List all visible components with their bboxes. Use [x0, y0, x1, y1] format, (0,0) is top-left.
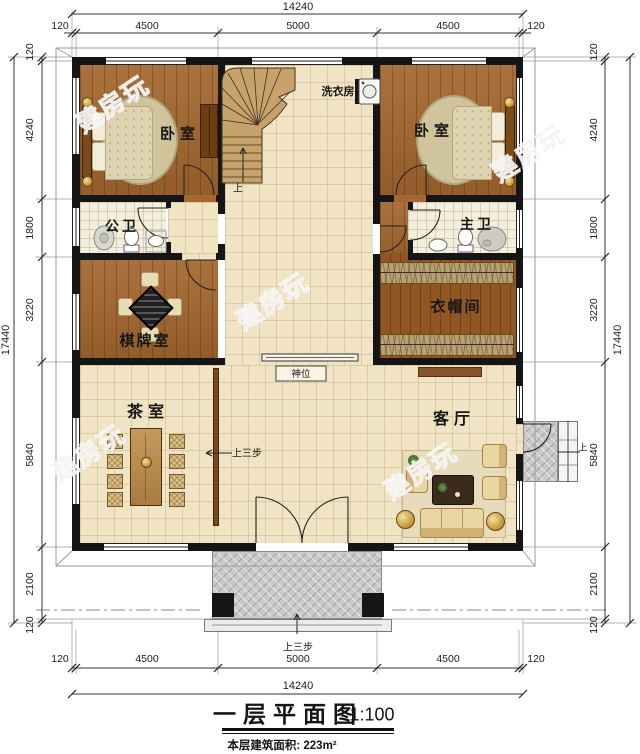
dim-left-seg: 1800: [24, 216, 36, 239]
up-three-steps-label: 上三步: [232, 445, 262, 460]
main-door-opening: [256, 543, 348, 551]
dim-left-seg: 4240: [24, 118, 36, 141]
bedside-lamp: [504, 97, 515, 108]
armchair: [482, 444, 507, 468]
tea-stool: [107, 492, 123, 507]
title-underline: [222, 728, 394, 731]
window: [516, 481, 523, 530]
up-three-steps-label: 上三步: [283, 639, 313, 654]
pillow: [490, 112, 505, 141]
wall-bathR-south: [408, 253, 523, 260]
window: [106, 57, 186, 65]
stair-up-label: 上: [233, 180, 243, 195]
window: [516, 288, 523, 352]
dim-bottom-seg: 120: [51, 653, 69, 665]
floor-plan-page: 卧室 卧室 洗衣房 公卫 主卫 棋牌室 衣帽间 茶室 客厅 神位 上 上 上三步…: [0, 0, 640, 754]
dim-right-overall: 17440: [612, 325, 624, 356]
window: [516, 386, 523, 418]
dim-right-seg: 4240: [588, 118, 600, 141]
window: [104, 543, 188, 551]
drawing-title: 一层平面图: [213, 695, 363, 729]
room-label-tea-room: 茶室: [127, 398, 169, 422]
dim-bottom-seg: 4500: [135, 653, 158, 665]
side-table: [396, 510, 415, 529]
side-porch-up-label: 上: [578, 441, 587, 454]
side-table: [486, 512, 505, 531]
dim-top-seg: 4500: [135, 20, 158, 32]
clothes-rack: [380, 334, 514, 356]
dim-left-overall: 17440: [0, 325, 12, 356]
door-opening: [394, 195, 426, 202]
door-opening: [182, 253, 216, 260]
wall-pubbath-partition: [166, 242, 171, 253]
wall-interior-left: [218, 57, 225, 195]
dim-right-seg: 2100: [588, 572, 600, 595]
entry-porch: [212, 551, 382, 619]
tea-stool: [169, 434, 185, 449]
room-label-bedroom-left: 卧室: [160, 123, 200, 144]
floor-vestibule-right: [380, 202, 408, 260]
title-underline: [222, 733, 394, 734]
wall-interior-right: [373, 254, 380, 358]
door-opening: [184, 195, 216, 202]
wall-masterbath-partition: [408, 202, 413, 210]
dim-right-seg: 3220: [588, 298, 600, 321]
dim-bottom-seg: 5000: [286, 653, 309, 665]
dim-top-seg: 120: [527, 20, 545, 32]
drawing-scale: 1:100: [349, 705, 394, 726]
laundry-niche-wall: [355, 79, 359, 104]
wall-interior-right: [373, 202, 380, 224]
dim-bottom-seg: 120: [527, 653, 545, 665]
tea-stool: [169, 492, 185, 507]
wall-interior-right: [373, 57, 380, 202]
room-label-bedroom-right: 卧室: [414, 120, 454, 141]
dim-bottom-overall: 14240: [283, 680, 314, 692]
clothes-rack: [380, 262, 514, 284]
room-label-cloakroom: 衣帽间: [430, 296, 481, 317]
dim-right-seg: 1800: [588, 216, 600, 239]
porch-column: [362, 593, 384, 617]
shrine-label: 神位: [291, 366, 310, 380]
dim-right-seg: 5840: [588, 443, 600, 466]
tv-console: [418, 367, 482, 377]
wall-cloak-south: [373, 358, 523, 365]
screen-partition: [213, 368, 219, 526]
dim-right-seg: 120: [588, 616, 600, 634]
side-porch: [523, 421, 558, 482]
tea-table: [130, 428, 162, 506]
tea-stool: [169, 474, 185, 489]
wall-pubbath-partition: [166, 202, 171, 208]
room-label-public-bath: 公卫: [105, 216, 139, 236]
dim-left-seg: 120: [24, 616, 36, 634]
sofa: [420, 508, 484, 538]
tea-stool: [169, 454, 185, 469]
dim-top-overall: 14240: [283, 1, 314, 13]
dim-bottom-seg: 4500: [436, 653, 459, 665]
dim-left-seg: 120: [24, 43, 36, 61]
rack-pole: [380, 344, 514, 345]
window: [252, 57, 342, 65]
room-label-master-bath: 主卫: [460, 214, 494, 234]
passage-opening: [380, 253, 408, 260]
dim-left-seg: 3220: [24, 298, 36, 321]
window: [394, 543, 468, 551]
rack-pole: [380, 272, 514, 273]
dim-top-seg: 5000: [286, 20, 309, 32]
side-porch-steps: [558, 421, 578, 482]
floor-area-note: 本层建筑面积: 223m²: [227, 737, 336, 753]
porch-column: [212, 593, 234, 617]
porch-door-opening: [516, 424, 523, 454]
window: [412, 57, 486, 65]
entry-steps: [204, 619, 392, 632]
bedside-lamp: [82, 176, 93, 187]
armchair: [482, 476, 507, 500]
wall-interior-left: [218, 202, 225, 214]
dim-right-seg: 120: [588, 43, 600, 61]
room-label-chess-room: 棋牌室: [119, 330, 170, 351]
wall-chess-south: [72, 358, 225, 365]
window: [72, 208, 80, 246]
floor-vestibule-left: [168, 202, 218, 253]
window: [516, 210, 523, 248]
room-label-laundry: 洗衣房: [322, 83, 355, 99]
tea-stool: [107, 474, 123, 489]
dim-left-seg: 2100: [24, 572, 36, 595]
dim-top-seg: 4500: [436, 20, 459, 32]
bed-duvet: [452, 106, 492, 180]
window: [72, 294, 80, 350]
dim-top-seg: 120: [51, 20, 69, 32]
wardrobe: [200, 104, 218, 158]
dim-left-seg: 5840: [24, 443, 36, 466]
wall-masterbath-partition: [408, 240, 413, 253]
room-label-living-room: 客厅: [433, 405, 475, 429]
